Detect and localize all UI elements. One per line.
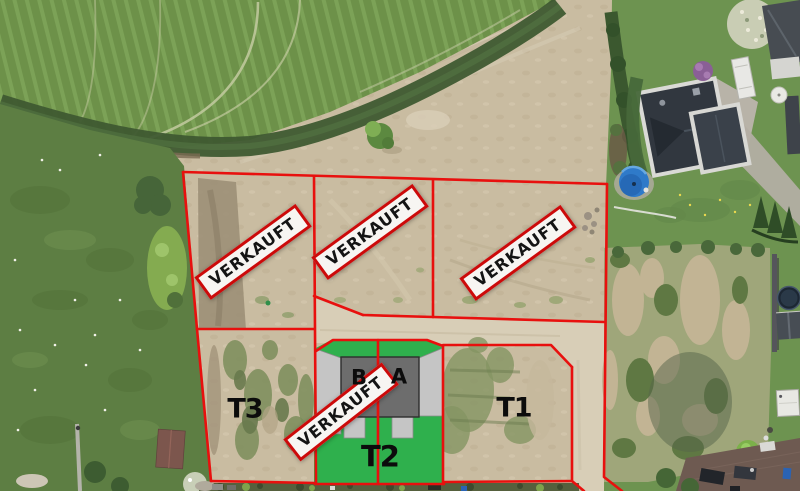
aerial-site-plan: VERKAUFT VERKAUFT VERKAUFT VERKAUFT T3 T… <box>0 0 800 491</box>
garden-shed <box>776 311 800 340</box>
plot-label-t1: T1 <box>496 395 531 422</box>
red-roof-building <box>156 429 186 469</box>
white-table <box>776 389 799 416</box>
garden-wall <box>772 254 777 352</box>
meadow <box>0 104 211 491</box>
trampoline <box>778 287 800 310</box>
unit-label-b: B <box>351 368 367 389</box>
plot-label-t3: T3 <box>227 396 262 423</box>
aerial-photo <box>0 0 800 491</box>
lilac-tree <box>693 61 713 81</box>
unit-label-a: A <box>391 367 407 388</box>
plot-label-t2: T2 <box>361 443 399 472</box>
